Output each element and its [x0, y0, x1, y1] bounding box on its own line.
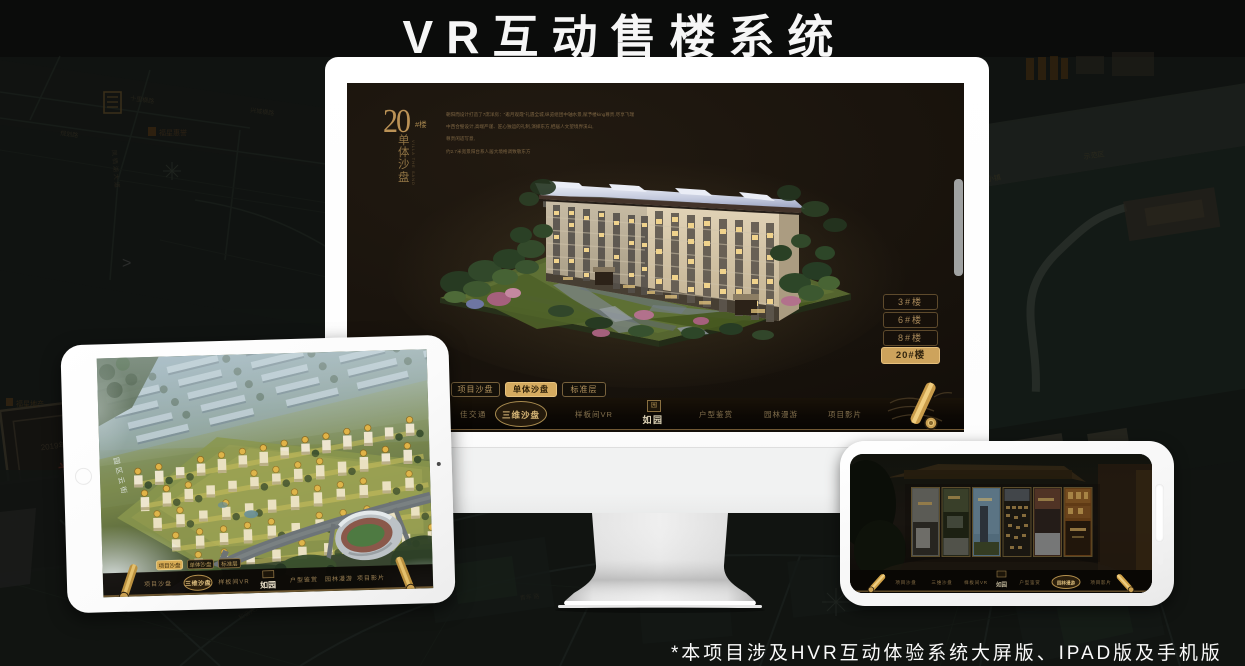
svg-text:如园: 如园	[996, 581, 1008, 589]
svg-text:项目影片: 项目影片	[1090, 579, 1111, 586]
svg-text:园林漫游: 园林漫游	[1057, 579, 1075, 586]
svg-text:户型鉴赏: 户型鉴赏	[1019, 579, 1040, 586]
svg-text:样板间VR: 样板间VR	[964, 579, 988, 586]
svg-text:三维沙盘: 三维沙盘	[931, 579, 952, 586]
svg-text:如园: 如园	[260, 580, 276, 590]
svg-text:项目沙盘: 项目沙盘	[895, 579, 916, 586]
